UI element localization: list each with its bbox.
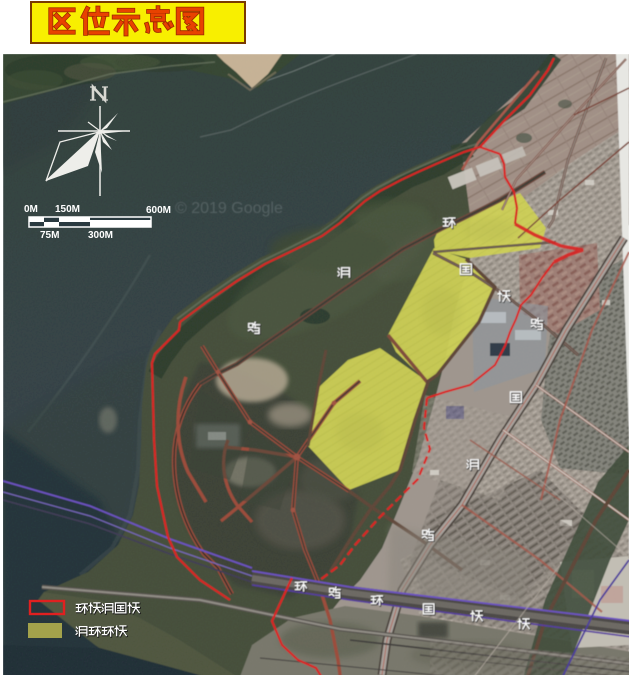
svg-text:© 2019 Google: © 2019 Google xyxy=(175,200,283,217)
svg-text:600M: 600M xyxy=(146,205,171,216)
svg-text:0M: 0M xyxy=(24,204,38,215)
svg-text:150M: 150M xyxy=(55,204,80,215)
svg-text:300M: 300M xyxy=(88,230,113,241)
svg-text:75M: 75M xyxy=(40,230,59,241)
